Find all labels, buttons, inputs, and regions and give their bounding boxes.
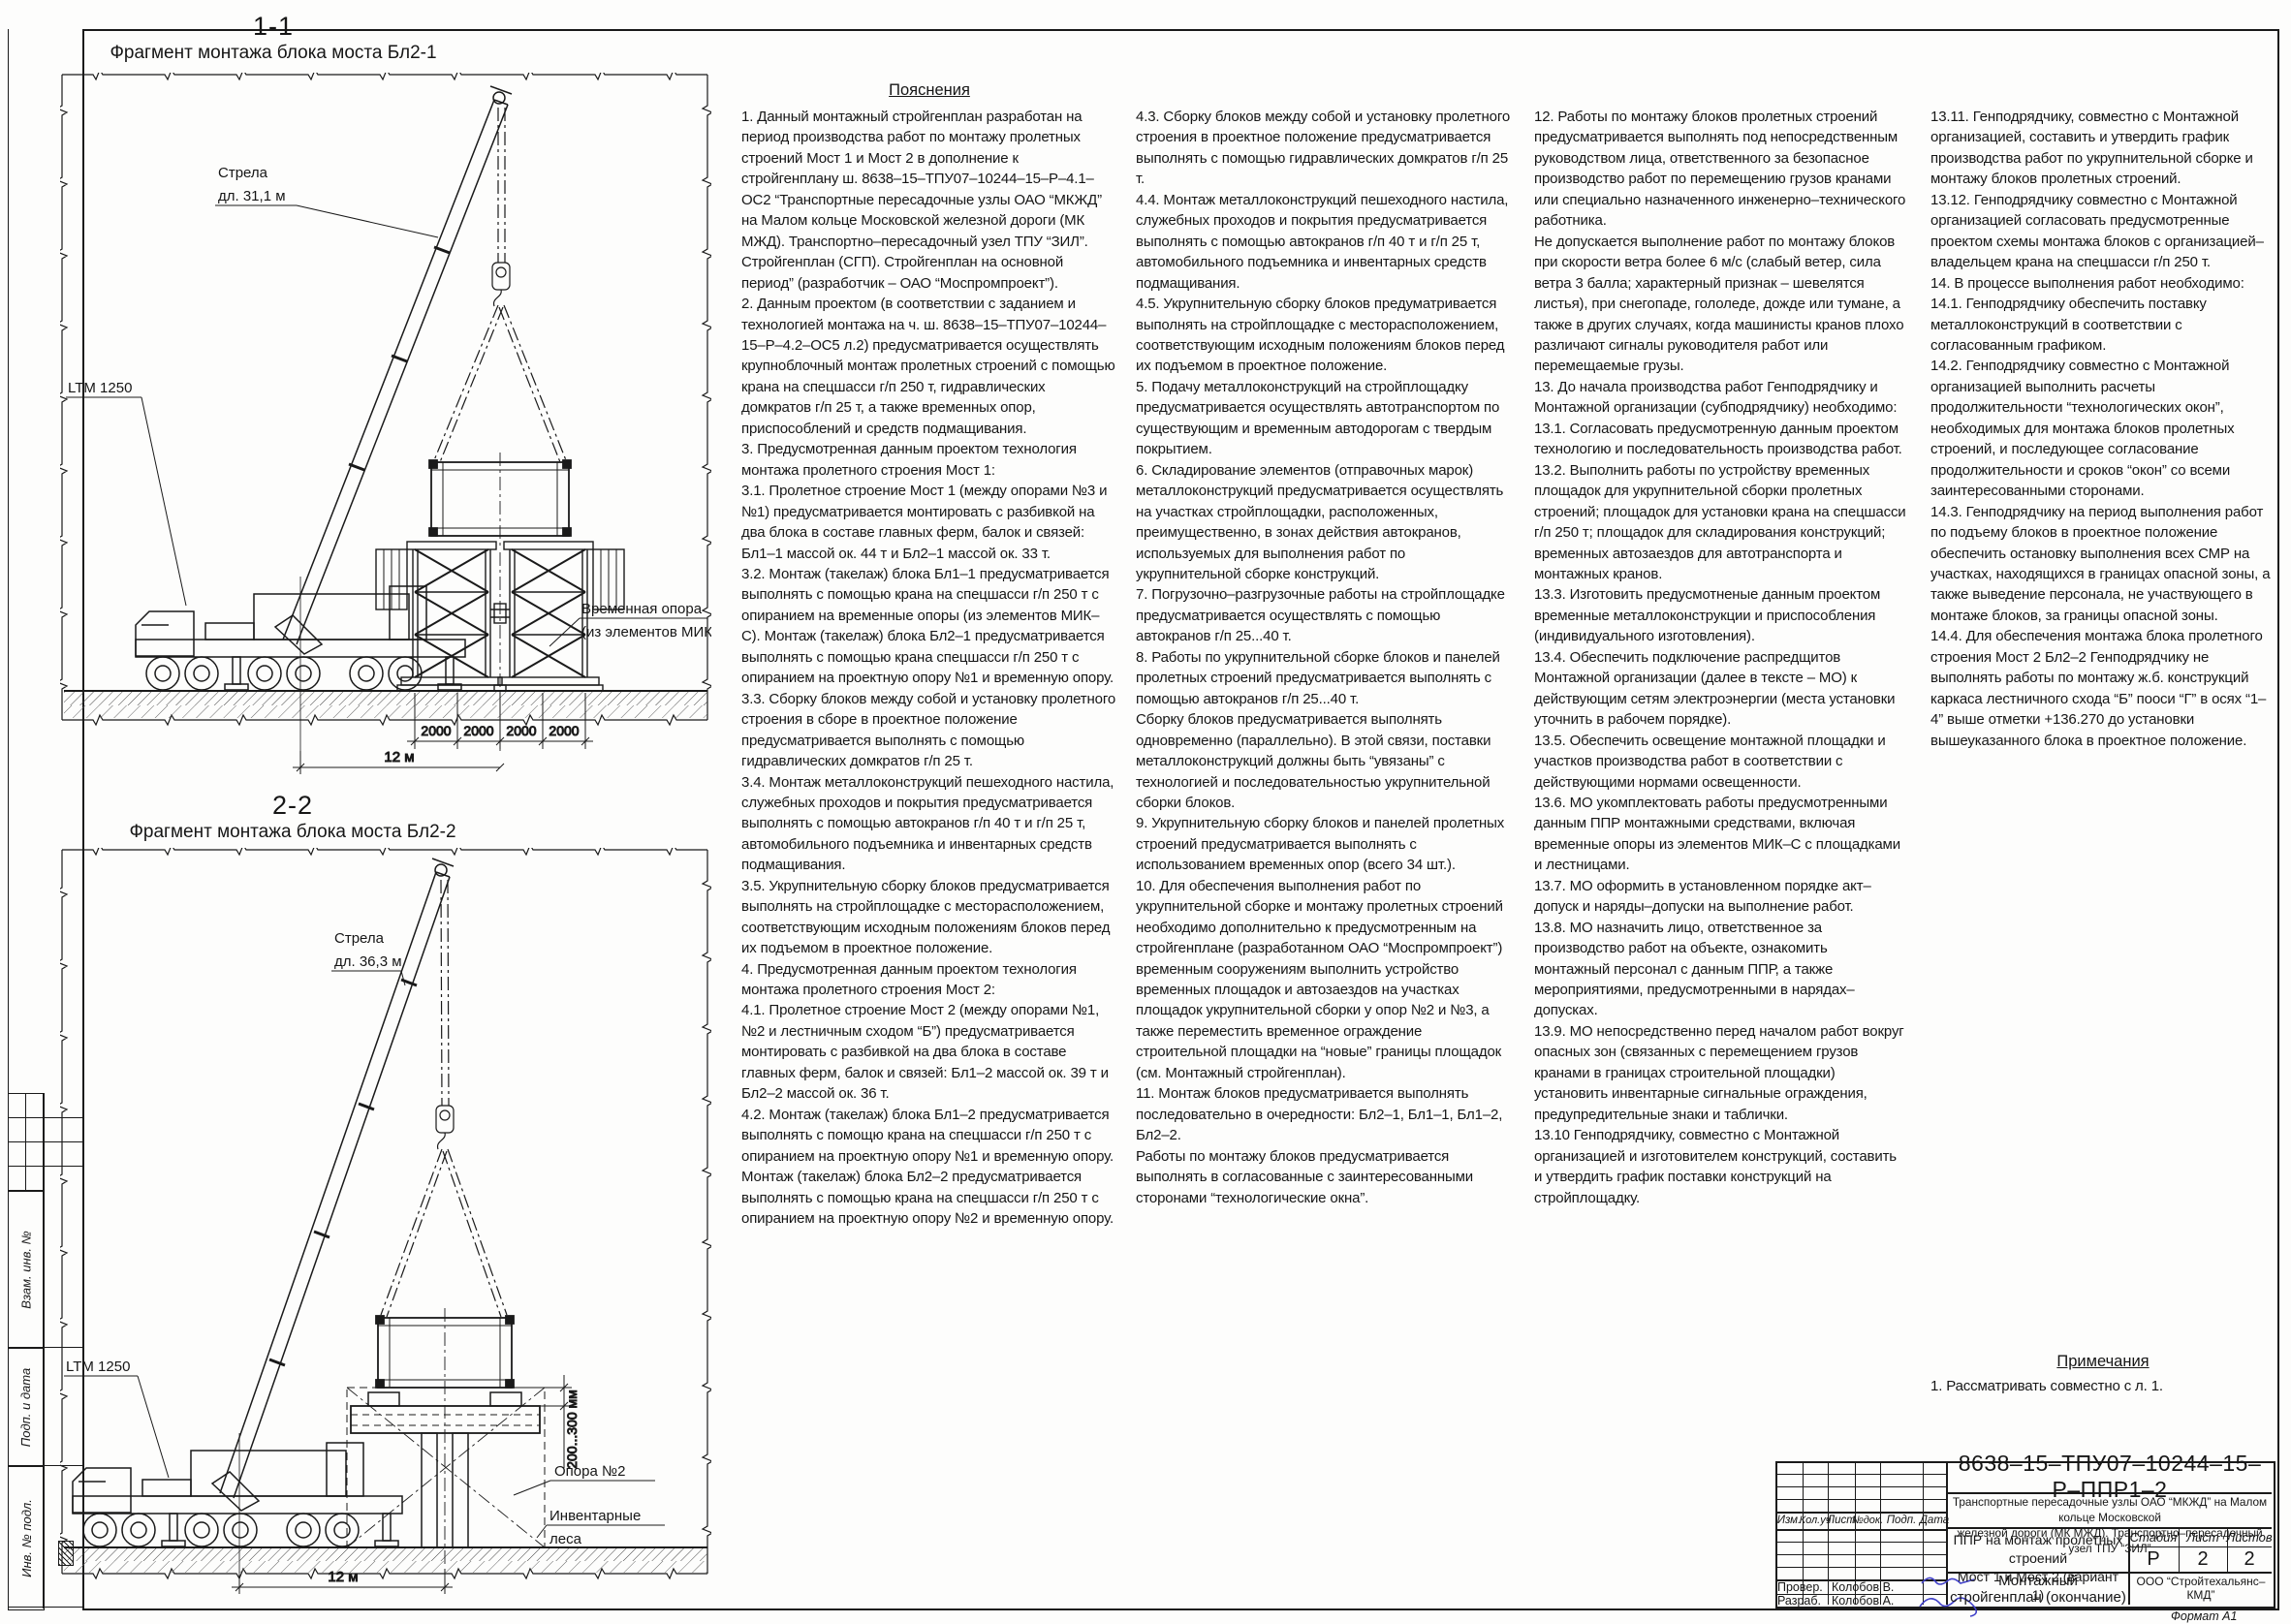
note-paragraph: 14.4. Для обеспечения монтажа блока прол…: [1930, 626, 2275, 751]
tb-row2-role: Разраб.: [1777, 1594, 1828, 1608]
view1-lifted-block: [429, 453, 571, 546]
note-paragraph: 5. Подачу металлоконструкций на стройпло…: [1136, 377, 1512, 460]
note-paragraph: 13.3. Изготовить предусмотненые данным п…: [1534, 584, 1906, 646]
note-paragraph: 14.1. Генподрядчику обеспечить поставку …: [1930, 294, 2275, 356]
view1-labels: Стрела дл. 31,1 м LTM 1250 Временная опо…: [66, 165, 711, 646]
view1-boom: [283, 86, 512, 644]
tb-col-ndok: №док.: [1855, 1512, 1880, 1529]
view2-drawing: 200...300 мм Стрела дл. 36,3 м LTM 1250 …: [60, 848, 711, 1608]
note-paragraph: 6. Складирование элементов (отправочных …: [1136, 460, 1512, 585]
note-paragraph: 13.8. МО назначить лицо, ответственное з…: [1534, 918, 1906, 1021]
note-paragraph: 13.5. Обеспечить освещение монтажной пло…: [1534, 731, 1906, 793]
note-paragraph: 1. Данный монтажный стройгенплан разрабо…: [741, 107, 1117, 294]
tb-stage-label: Стадия: [2128, 1527, 2179, 1546]
view1-drawing: Стрела дл. 31,1 м LTM 1250 Временная опо…: [60, 73, 711, 780]
note-paragraph: 13.1. Согласовать предусмотренную данным…: [1534, 419, 1906, 460]
tb-company: ООО “Стройтехальянс–КМД”: [2130, 1572, 2272, 1605]
view2-section-title: 2-2: [60, 791, 525, 821]
note-paragraph: 10. Для обеспечения выполнения работ по …: [1136, 876, 1512, 1084]
view2-hoist-and-hook: [381, 880, 507, 1317]
view2-ground: [64, 1547, 707, 1573]
note-paragraph: 3.4. Монтаж металлоконструкций пешеходно…: [741, 772, 1117, 876]
tb-project-line1: Транспортные пересадочные узлы ОАО “МКЖД…: [1950, 1494, 2270, 1525]
remarks-list: 1. Рассматривать совместно с л. 1.: [1930, 1376, 2275, 1396]
note-paragraph: 3.2. Монтаж (такелаж) блока Бл1–1 предус…: [741, 564, 1117, 689]
tb-sheet-title-line2: стройгенплан (окончание): [1950, 1590, 2126, 1607]
view2-pier: [347, 1388, 545, 1547]
view1-ground: [64, 691, 707, 718]
tb-sheet-title-line1: Монтажный: [1950, 1574, 2126, 1590]
note-paragraph: 4.5. Укрупнительную сборку блоков предум…: [1136, 294, 1512, 377]
note-paragraph: 11. Монтаж блоков предусматривается выпо…: [1136, 1083, 1512, 1145]
note-paragraph: 13.9. МО непосредственно перед началом р…: [1534, 1021, 1906, 1125]
note-paragraph: 4.4. Монтаж металлоконструкций пешеходно…: [1136, 190, 1512, 294]
note-paragraph: 4.1. Пролетное строение Мост 2 (между оп…: [741, 1000, 1117, 1104]
note-paragraph: 3.5. Укрупнительную сборку блоков предус…: [741, 876, 1117, 959]
tb-row1-role: Провер.: [1777, 1579, 1828, 1594]
note-paragraph: 1. Рассматривать совместно с л. 1.: [1930, 1376, 2275, 1396]
note-paragraph: 13.11. Генподрядчику, совместно с Монтаж…: [1930, 107, 2275, 190]
note-paragraph: 14.2. Генподрядчику совместно с Монтажно…: [1930, 356, 2275, 501]
view1-support-label-line1: Временная опора: [581, 601, 703, 617]
note-paragraph: 13.2. Выполнить работы по устройству вре…: [1534, 460, 1906, 585]
view2-crane-model-label: LTM 1250: [66, 1359, 130, 1375]
note-paragraph: Не допускается выполнение работ по монта…: [1534, 232, 1906, 377]
tb-row1-name: Колобов В.: [1832, 1579, 1919, 1594]
note-paragraph: 9. Укрупнительную сборку блоков и панеле…: [1136, 813, 1512, 875]
note-paragraph: 4. Предусмотренная данным проектом техно…: [741, 959, 1117, 1001]
notes-column-4: 13.11. Генподрядчику, совместно с Монтаж…: [1930, 107, 2275, 751]
side-stamp-cell-inv: Инв. № подл.: [8, 1465, 45, 1610]
note-paragraph: 7. Погрузочно–разгрузочные работы на стр…: [1136, 584, 1512, 646]
note-paragraph: 2. Данным проектом (в соответствии с зад…: [741, 294, 1117, 439]
view1-boom-label-line1: Стрела: [218, 165, 268, 181]
view1-radius-dim: 12 м: [384, 749, 414, 765]
view1-boom-label-line2: дл. 31,1 м: [218, 188, 286, 204]
note-paragraph: 13.7. МО оформить в установленном порядк…: [1534, 876, 1906, 918]
tb-project: Транспортные пересадочные узлы ОАО “МКЖД…: [1950, 1494, 2270, 1527]
note-paragraph: 13.10 Генподрядчику, совместно с Монтажн…: [1534, 1125, 1906, 1208]
note-paragraph: Сборку блоков предусматривается выполнят…: [1136, 709, 1512, 813]
notes-column-3: 12. Работы по монтажу блоков пролетных с…: [1534, 107, 1906, 1208]
note-paragraph: 3.1. Пролетное строение Мост 1 (между оп…: [741, 481, 1117, 564]
view1-dim-2000-3: 2000: [506, 723, 536, 738]
format-label: Формат А1: [2171, 1609, 2237, 1623]
view1-hoist-and-hook: [434, 108, 566, 462]
tb-col-koluch: Кол.уч: [1803, 1512, 1828, 1529]
tb-sheet-value: 2: [2179, 1546, 2227, 1572]
view2-radius-dim: 12 м: [328, 1569, 358, 1585]
tb-col-data: Дата: [1923, 1512, 1946, 1529]
note-paragraph: 4.3. Сборку блоков между собой и установ…: [1136, 107, 1512, 190]
side-stamp-label-vzam: Взам. инв. №: [19, 1231, 34, 1308]
note-paragraph: Работы по монтажу блоков предусматривает…: [1136, 1146, 1512, 1208]
notes-column-2: 4.3. Сборку блоков между собой и установ…: [1136, 107, 1512, 1208]
view1-caption: Фрагмент монтажа блока моста Бл2-1: [41, 43, 506, 64]
side-stamp-label-inv: Инв. № подл.: [19, 1499, 34, 1577]
view1-dim-2000-4: 2000: [549, 723, 579, 738]
side-stamp-hatch-mark: [58, 1541, 74, 1566]
notes-title: Пояснения: [741, 81, 1117, 100]
note-paragraph: 3.3. Сборку блоков между собой и установ…: [741, 689, 1117, 772]
tb-sheets-label: Листов: [2227, 1527, 2272, 1546]
tb-doc-number: 8638–15–ТПУ07–10244–15–Р–ППР1–2: [1948, 1461, 2272, 1492]
notes-column-1: 1. Данный монтажный стройгенплан разрабо…: [741, 107, 1117, 1229]
note-paragraph: 13.12. Генподрядчику совместно с Монтажн…: [1930, 190, 2275, 273]
view2-pier-label: Опора №2: [554, 1463, 625, 1480]
tb-object-line1: ППР на монтаж пролетных строений: [1950, 1531, 2126, 1568]
note-paragraph: 8. Работы по укрупнительной сборке блоко…: [1136, 647, 1512, 709]
view2-scaffold-label-line2: леса: [549, 1531, 582, 1547]
note-paragraph: 12. Работы по монтажу блоков пролетных с…: [1534, 107, 1906, 232]
view1-support-label-line2: (из элементов МИК-С): [581, 624, 711, 640]
tb-object: ППР на монтаж пролетных строений Мост 1 …: [1950, 1531, 2126, 1570]
tb-row2-name: Колобов А.: [1832, 1594, 1919, 1608]
note-paragraph: 13.6. МО укомплектовать работы предусмот…: [1534, 793, 1906, 876]
view2-scaffold-label-line1: Инвентарные: [549, 1508, 641, 1524]
side-stamp-label-podp: Подп. и дата: [19, 1367, 34, 1446]
note-paragraph: 14. В процессе выполнения работ необходи…: [1930, 273, 2275, 294]
view2-boom-label-line1: Стрела: [334, 930, 385, 947]
tb-sheet-title: Монтажный стройгенплан (окончание): [1950, 1574, 2126, 1605]
side-stamp-cell-vzam: Взам. инв. №: [8, 1190, 45, 1349]
view2-crane-truck: [73, 1443, 402, 1546]
note-paragraph: 14.3. Генподрядчику на период выполнения…: [1930, 502, 2275, 627]
view1-crane-model-label: LTM 1250: [68, 380, 132, 396]
tb-sheet-label: Лист: [2179, 1527, 2227, 1546]
note-paragraph: 13.4. Обеспечить подключение распредщито…: [1534, 647, 1906, 731]
tb-col-list: Лист: [1828, 1512, 1855, 1529]
tb-sheets-value: 2: [2227, 1546, 2272, 1572]
drawing-sheet: { "views": { "view1": { "section": "1-1"…: [0, 0, 2291, 1624]
view2-boom-label-line2: дл. 36,3 м: [334, 953, 402, 970]
side-stamp-cell-podp: Подп. и дата: [8, 1347, 45, 1467]
view2-gap-dimension: 200...300 мм: [514, 1375, 580, 1469]
note-paragraph: 3. Предусмотренная данным проектом техно…: [741, 439, 1117, 481]
view1-dim-2000-1: 2000: [421, 723, 451, 738]
note-paragraph: 13. До начала производства работ Генподр…: [1534, 377, 1906, 419]
note-paragraph: 4.2. Монтаж (такелаж) блока Бл1–2 предус…: [741, 1105, 1117, 1230]
view1-section-title: 1-1: [60, 12, 486, 42]
tb-stage-value: Р: [2128, 1546, 2179, 1572]
remarks-title: Примечания: [1930, 1353, 2275, 1371]
side-stamp-grid: [8, 1093, 45, 1192]
view1-dim-2000-2: 2000: [463, 723, 493, 738]
tb-col-podp: Подп.: [1880, 1512, 1923, 1529]
view2-gap-dim-text: 200...300 мм: [564, 1390, 580, 1469]
view2-lifted-block: [376, 1308, 514, 1565]
view2-caption: Фрагмент монтажа блока моста Бл2-2: [60, 822, 525, 843]
